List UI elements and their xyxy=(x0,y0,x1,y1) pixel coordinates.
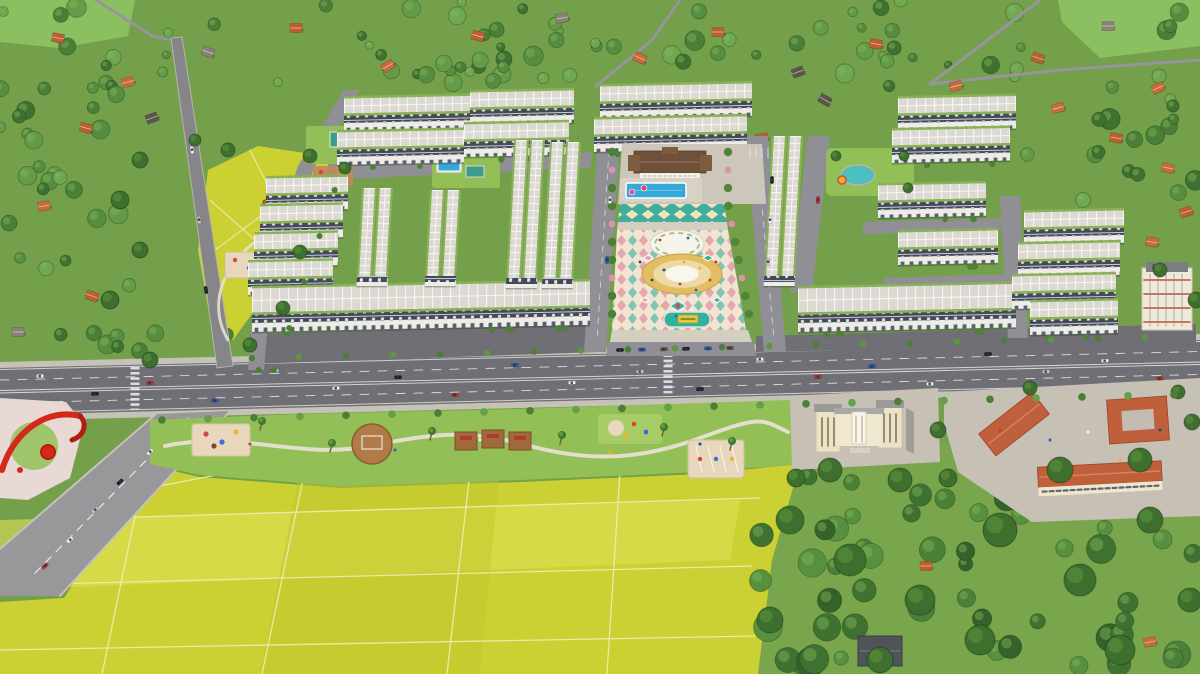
car-glass xyxy=(148,382,151,384)
plaza-flank-tree xyxy=(608,310,616,318)
tree-highlight xyxy=(474,54,481,61)
accent-tree-highlight xyxy=(908,588,923,603)
play-equipment xyxy=(730,457,734,461)
boulevard-tree xyxy=(894,398,902,406)
plaza-visitor xyxy=(675,315,678,318)
front-steps xyxy=(850,448,870,453)
pedestrian xyxy=(1159,429,1162,432)
tree-highlight xyxy=(209,20,215,26)
car-glass xyxy=(1158,377,1161,379)
plaza-visitor xyxy=(687,237,690,240)
street-tree xyxy=(256,367,262,373)
village-house xyxy=(290,24,304,34)
row-facade xyxy=(506,278,537,284)
plaza-flank-tree xyxy=(608,238,616,246)
tree-highlight xyxy=(912,487,922,497)
tree-highlight xyxy=(1072,659,1080,667)
tree-highlight xyxy=(1188,173,1197,182)
tree-highlight xyxy=(89,103,95,109)
tree-highlight xyxy=(937,491,946,500)
palm-crown-highlight xyxy=(329,440,333,444)
plaza-crosswalk xyxy=(617,222,728,230)
tree-highlight xyxy=(1058,542,1066,550)
tree-highlight xyxy=(88,327,95,334)
play-equipment xyxy=(624,434,629,439)
tree-highlight xyxy=(100,337,109,346)
tree-highlight xyxy=(466,68,470,72)
plaza-visitor xyxy=(699,267,702,270)
plaza-visitor xyxy=(671,249,674,252)
accent-tree-highlight xyxy=(1130,450,1142,462)
townhouse-row xyxy=(798,281,1016,338)
car-glass xyxy=(769,218,771,221)
tree-highlight xyxy=(438,57,446,65)
car xyxy=(696,387,703,391)
clubhouse-tower xyxy=(662,147,678,154)
red-feature xyxy=(17,467,23,473)
tree-highlight xyxy=(817,522,826,531)
car-glass xyxy=(817,198,820,201)
play-equipment xyxy=(644,430,649,435)
tree-highlight xyxy=(753,526,764,537)
plaza-south-walk xyxy=(610,330,752,342)
accent-tree-highlight xyxy=(103,293,112,302)
clubhouse-gable xyxy=(628,155,640,171)
tree-highlight xyxy=(847,510,854,517)
boulevard-tree xyxy=(1001,337,1007,343)
village-house xyxy=(920,562,934,572)
car-glass xyxy=(38,375,41,377)
tree-highlight xyxy=(35,162,40,167)
tree-highlight xyxy=(149,327,157,335)
boulevard-tree xyxy=(940,397,948,405)
car-glass xyxy=(205,288,208,291)
row-wall xyxy=(542,284,573,288)
car xyxy=(1156,377,1163,381)
car xyxy=(394,375,401,379)
row-wall xyxy=(764,282,795,286)
play-equipment xyxy=(698,457,702,461)
boulevard-tree xyxy=(802,400,810,408)
tree-highlight xyxy=(456,63,461,68)
accent-tree-highlight xyxy=(1154,264,1161,271)
tree-highlight xyxy=(1094,114,1100,120)
boulevard-tree xyxy=(1124,392,1132,400)
plaza-visitor xyxy=(663,269,666,272)
pedestrian xyxy=(394,449,397,452)
aerial-site-render xyxy=(0,0,1200,674)
accent-tree-highlight xyxy=(190,135,196,141)
car-glass xyxy=(213,399,216,401)
row-wall xyxy=(506,284,537,288)
row-facade xyxy=(425,276,456,282)
boulevard-tree xyxy=(296,413,304,421)
townhouse-row xyxy=(1030,298,1118,341)
tree-highlight xyxy=(1168,101,1174,107)
tree-highlight xyxy=(665,48,673,56)
car xyxy=(211,399,218,403)
motif-center xyxy=(676,304,680,308)
pedestrian xyxy=(999,429,1002,432)
plaza-visitor xyxy=(659,239,662,242)
street-tree xyxy=(317,233,323,239)
car-glass xyxy=(684,348,687,350)
car xyxy=(704,347,711,351)
car-glass xyxy=(640,348,643,350)
plaza-visitor xyxy=(661,305,664,308)
row-shadow xyxy=(764,286,795,287)
boulevard-tree xyxy=(249,355,255,361)
tree-highlight xyxy=(858,24,862,28)
accent-tree-highlight xyxy=(789,471,798,480)
tree-highlight xyxy=(905,507,913,515)
tree-highlight xyxy=(1124,166,1130,172)
tree-highlight xyxy=(687,33,696,42)
car-glass xyxy=(93,393,96,395)
tree-highlight xyxy=(693,6,700,13)
car xyxy=(726,346,733,350)
accent-tree-highlight xyxy=(832,152,837,157)
boulevard-tree xyxy=(342,412,350,420)
boulevard-tree xyxy=(434,409,442,417)
tree-highlight xyxy=(43,174,51,182)
tree-highlight xyxy=(923,540,935,552)
car-glass xyxy=(638,370,641,372)
accent-tree-highlight xyxy=(1108,638,1123,653)
tree-highlight xyxy=(69,0,78,9)
accent-tree-highlight xyxy=(1140,510,1153,523)
tree-highlight xyxy=(101,77,108,84)
tree-highlight xyxy=(975,611,984,620)
car xyxy=(868,364,875,368)
accent-tree-highlight xyxy=(1050,460,1063,473)
accent-tree-highlight xyxy=(304,150,311,157)
tree-highlight xyxy=(1154,71,1160,77)
car xyxy=(756,358,763,362)
car-glass xyxy=(771,178,773,181)
accent-tree-highlight xyxy=(779,509,793,523)
tree-highlight xyxy=(1165,21,1171,27)
tree-highlight xyxy=(592,39,596,43)
street-tree xyxy=(301,279,307,285)
plaza-visitor xyxy=(715,261,718,264)
tree-highlight xyxy=(377,51,382,56)
tree-highlight xyxy=(275,79,279,83)
tree-highlight xyxy=(499,62,504,67)
car xyxy=(926,382,933,386)
boulevard-tree xyxy=(158,416,166,424)
play-equipment xyxy=(211,443,216,448)
accent-tree-highlight xyxy=(144,354,152,362)
row-facade xyxy=(764,276,795,282)
plaza-flank-tree xyxy=(609,167,616,174)
boulevard-tree xyxy=(848,399,856,407)
play-equipment xyxy=(632,422,637,427)
tree-highlight xyxy=(1166,95,1171,100)
tree-highlight xyxy=(20,169,28,177)
accent-tree-highlight xyxy=(1180,590,1192,602)
accent-tree-highlight xyxy=(134,244,142,252)
pedestrian xyxy=(609,451,612,454)
street-tree xyxy=(332,187,338,193)
tree-highlight xyxy=(526,48,535,57)
accent-tree-highlight xyxy=(890,470,902,482)
row-facade xyxy=(357,276,388,282)
row-shadow xyxy=(506,288,537,289)
garden-pergola xyxy=(482,430,504,448)
street-tree xyxy=(286,325,292,331)
garden-pergola xyxy=(455,432,477,450)
accent-tree-highlight xyxy=(244,339,251,346)
plaza-flank-tree xyxy=(724,184,732,192)
plaza-flank-tree xyxy=(724,148,732,156)
garden-pergola xyxy=(509,432,531,450)
accent-tree-highlight xyxy=(1186,416,1194,424)
plaza-visitor xyxy=(679,283,682,286)
boulevard-tree xyxy=(343,353,349,359)
tree-highlight xyxy=(945,62,949,66)
tree-highlight xyxy=(677,56,684,63)
tree-highlight xyxy=(858,44,866,52)
plaza-visitor xyxy=(639,261,642,264)
tree-highlight xyxy=(1118,614,1126,622)
tree-highlight xyxy=(820,591,831,602)
plaza-flank-tree xyxy=(745,310,753,318)
tree-highlight xyxy=(815,22,822,29)
tree-highlight xyxy=(791,38,798,45)
tree-highlight xyxy=(960,591,968,599)
tree-highlight xyxy=(836,653,842,659)
tree-highlight xyxy=(1108,82,1114,88)
boulevard-tree xyxy=(204,415,212,423)
tree-highlight xyxy=(487,75,494,82)
play-equipment xyxy=(219,439,224,444)
boulevard-tree xyxy=(907,340,913,346)
street-tree xyxy=(271,367,277,373)
tree-highlight xyxy=(1077,194,1084,201)
tree-highlight xyxy=(113,342,118,347)
circular-deck xyxy=(352,424,392,464)
tree-highlight xyxy=(539,74,544,79)
accent-tree-highlight xyxy=(340,163,346,169)
car-glass xyxy=(606,258,608,261)
school-building xyxy=(1107,396,1170,444)
row-shadow xyxy=(542,288,573,289)
village-house xyxy=(1102,22,1116,32)
car-glass xyxy=(570,381,573,383)
car-glass xyxy=(816,376,819,378)
building-shadow xyxy=(906,408,914,454)
red-pavilion xyxy=(41,445,55,459)
tree-highlight xyxy=(1032,616,1039,623)
car xyxy=(146,381,153,385)
boulevard-tree xyxy=(1032,394,1040,402)
plaza-visitor xyxy=(667,295,670,298)
tree-highlight xyxy=(1018,44,1022,48)
tree-highlight xyxy=(89,84,94,89)
tree-highlight xyxy=(39,84,45,90)
tree-highlight xyxy=(321,1,327,7)
car xyxy=(36,374,43,378)
car-glass xyxy=(758,358,761,360)
tree-highlight xyxy=(67,183,75,191)
car xyxy=(984,352,991,356)
plaza-flank-tree xyxy=(725,167,732,174)
playground-lawn xyxy=(598,414,662,444)
plaza-flank-tree xyxy=(731,238,739,246)
clubhouse xyxy=(628,147,712,179)
boulevard-tree xyxy=(618,405,626,413)
gold-circle-center xyxy=(665,266,699,283)
mosaic-teal-band xyxy=(618,204,727,222)
tree-highlight xyxy=(1022,149,1028,155)
accent-tree-highlight xyxy=(134,154,142,162)
tree-highlight xyxy=(110,88,117,95)
car-glass xyxy=(870,365,873,367)
tree-highlight xyxy=(889,43,895,49)
accent-tree-highlight xyxy=(941,471,950,480)
row-shadow xyxy=(356,286,387,287)
boulevard-tree xyxy=(388,410,396,418)
tree-highlight xyxy=(882,56,888,62)
boulevard-tree xyxy=(390,352,396,358)
car xyxy=(451,393,458,397)
boulevard-tree xyxy=(672,345,678,351)
tree-highlight xyxy=(163,52,167,56)
accent-tree-highlight xyxy=(277,302,284,309)
car xyxy=(768,216,772,223)
plaza-flank-tree xyxy=(734,256,742,264)
tree-highlight xyxy=(1155,532,1164,541)
tree-highlight xyxy=(1012,64,1018,70)
tree-highlight xyxy=(165,29,169,33)
plaza-flank-tree xyxy=(609,275,616,282)
car xyxy=(332,386,339,390)
tree-highlight xyxy=(420,68,427,75)
car xyxy=(814,375,821,379)
car-glass xyxy=(706,347,709,349)
accent-tree-highlight xyxy=(870,650,883,663)
accent-tree-highlight xyxy=(1024,382,1031,389)
tree-highlight xyxy=(551,34,558,41)
car xyxy=(608,196,612,203)
tree-highlight xyxy=(491,24,498,31)
tree-highlight xyxy=(107,51,114,58)
tree-highlight xyxy=(845,617,857,629)
sand-circle xyxy=(608,420,624,436)
townhouse-row xyxy=(892,126,1010,170)
boulevard-tree xyxy=(1078,393,1086,401)
car xyxy=(568,381,575,385)
tree-highlight xyxy=(972,506,980,514)
tree-highlight xyxy=(984,58,992,66)
accent-tree-highlight xyxy=(294,246,301,253)
tree-highlight xyxy=(803,648,816,661)
pedestrian xyxy=(699,443,702,446)
car xyxy=(682,347,689,351)
tree-highlight xyxy=(875,2,882,9)
car-glass xyxy=(928,383,931,385)
palm-crown-highlight xyxy=(259,418,263,422)
play-equipment xyxy=(233,429,238,434)
car xyxy=(605,256,609,263)
plaza-visitor xyxy=(691,309,694,312)
town-hall xyxy=(814,400,914,454)
sport-court xyxy=(466,166,484,177)
accent-tree-highlight xyxy=(904,184,909,189)
plaza-flank-tree xyxy=(724,202,732,210)
car-glass xyxy=(698,388,701,390)
plaza-visitor xyxy=(683,261,686,264)
boulevard-tree xyxy=(296,354,302,360)
tree-highlight xyxy=(90,211,98,219)
boulevard-tree xyxy=(1170,391,1178,399)
tree-highlight xyxy=(1172,5,1180,13)
tree-highlight xyxy=(39,184,44,189)
car-glass xyxy=(609,198,611,201)
pedestrian xyxy=(249,443,252,446)
tree-highlight xyxy=(752,572,762,582)
play-equipment xyxy=(714,457,718,461)
play-equipment xyxy=(203,431,208,436)
boulevard-tree xyxy=(719,344,725,350)
car-glass xyxy=(662,348,665,350)
car xyxy=(660,347,667,351)
tree-highlight xyxy=(712,48,719,55)
car-glass xyxy=(334,387,337,389)
car xyxy=(638,348,645,352)
tree-highlight xyxy=(1008,6,1016,14)
palm-crown-highlight xyxy=(429,428,433,432)
tree-highlight xyxy=(802,552,815,565)
pool-umbrella xyxy=(641,185,647,191)
car-glass xyxy=(198,218,201,221)
tree-highlight xyxy=(608,41,615,48)
tree-highlight xyxy=(55,9,62,16)
boulevard-tree xyxy=(986,395,994,403)
tree-highlight xyxy=(1120,595,1129,604)
plaza-flank-tree xyxy=(608,148,616,156)
tree-highlight xyxy=(1128,133,1135,140)
tree-highlight xyxy=(27,134,35,142)
boulevard-tree xyxy=(531,348,537,354)
row-wall xyxy=(425,282,456,286)
accent-tree-highlight xyxy=(760,610,773,623)
flower-bed xyxy=(838,176,846,184)
car-glass xyxy=(1044,370,1047,372)
tree-highlight xyxy=(846,476,853,483)
car xyxy=(816,196,820,203)
boulevard-tree xyxy=(480,408,488,416)
tree-highlight xyxy=(910,54,914,58)
tree-highlight xyxy=(1090,538,1103,551)
tree-highlight xyxy=(358,32,362,36)
plaza-flank-tree xyxy=(739,275,746,282)
car xyxy=(91,392,98,396)
clubhouse-gable xyxy=(700,155,712,171)
play-equipment xyxy=(319,170,323,174)
tree-highlight xyxy=(102,62,107,67)
plaza-flank-tree xyxy=(741,292,749,300)
tree-highlight xyxy=(1166,651,1175,660)
tree-highlight xyxy=(112,331,118,337)
pedestrian xyxy=(479,439,482,442)
tree-highlight xyxy=(753,51,757,55)
accent-tree-highlight xyxy=(1190,294,1198,302)
tree-highlight xyxy=(838,66,847,75)
car-glass xyxy=(728,347,731,349)
tree-highlight xyxy=(1093,147,1099,153)
